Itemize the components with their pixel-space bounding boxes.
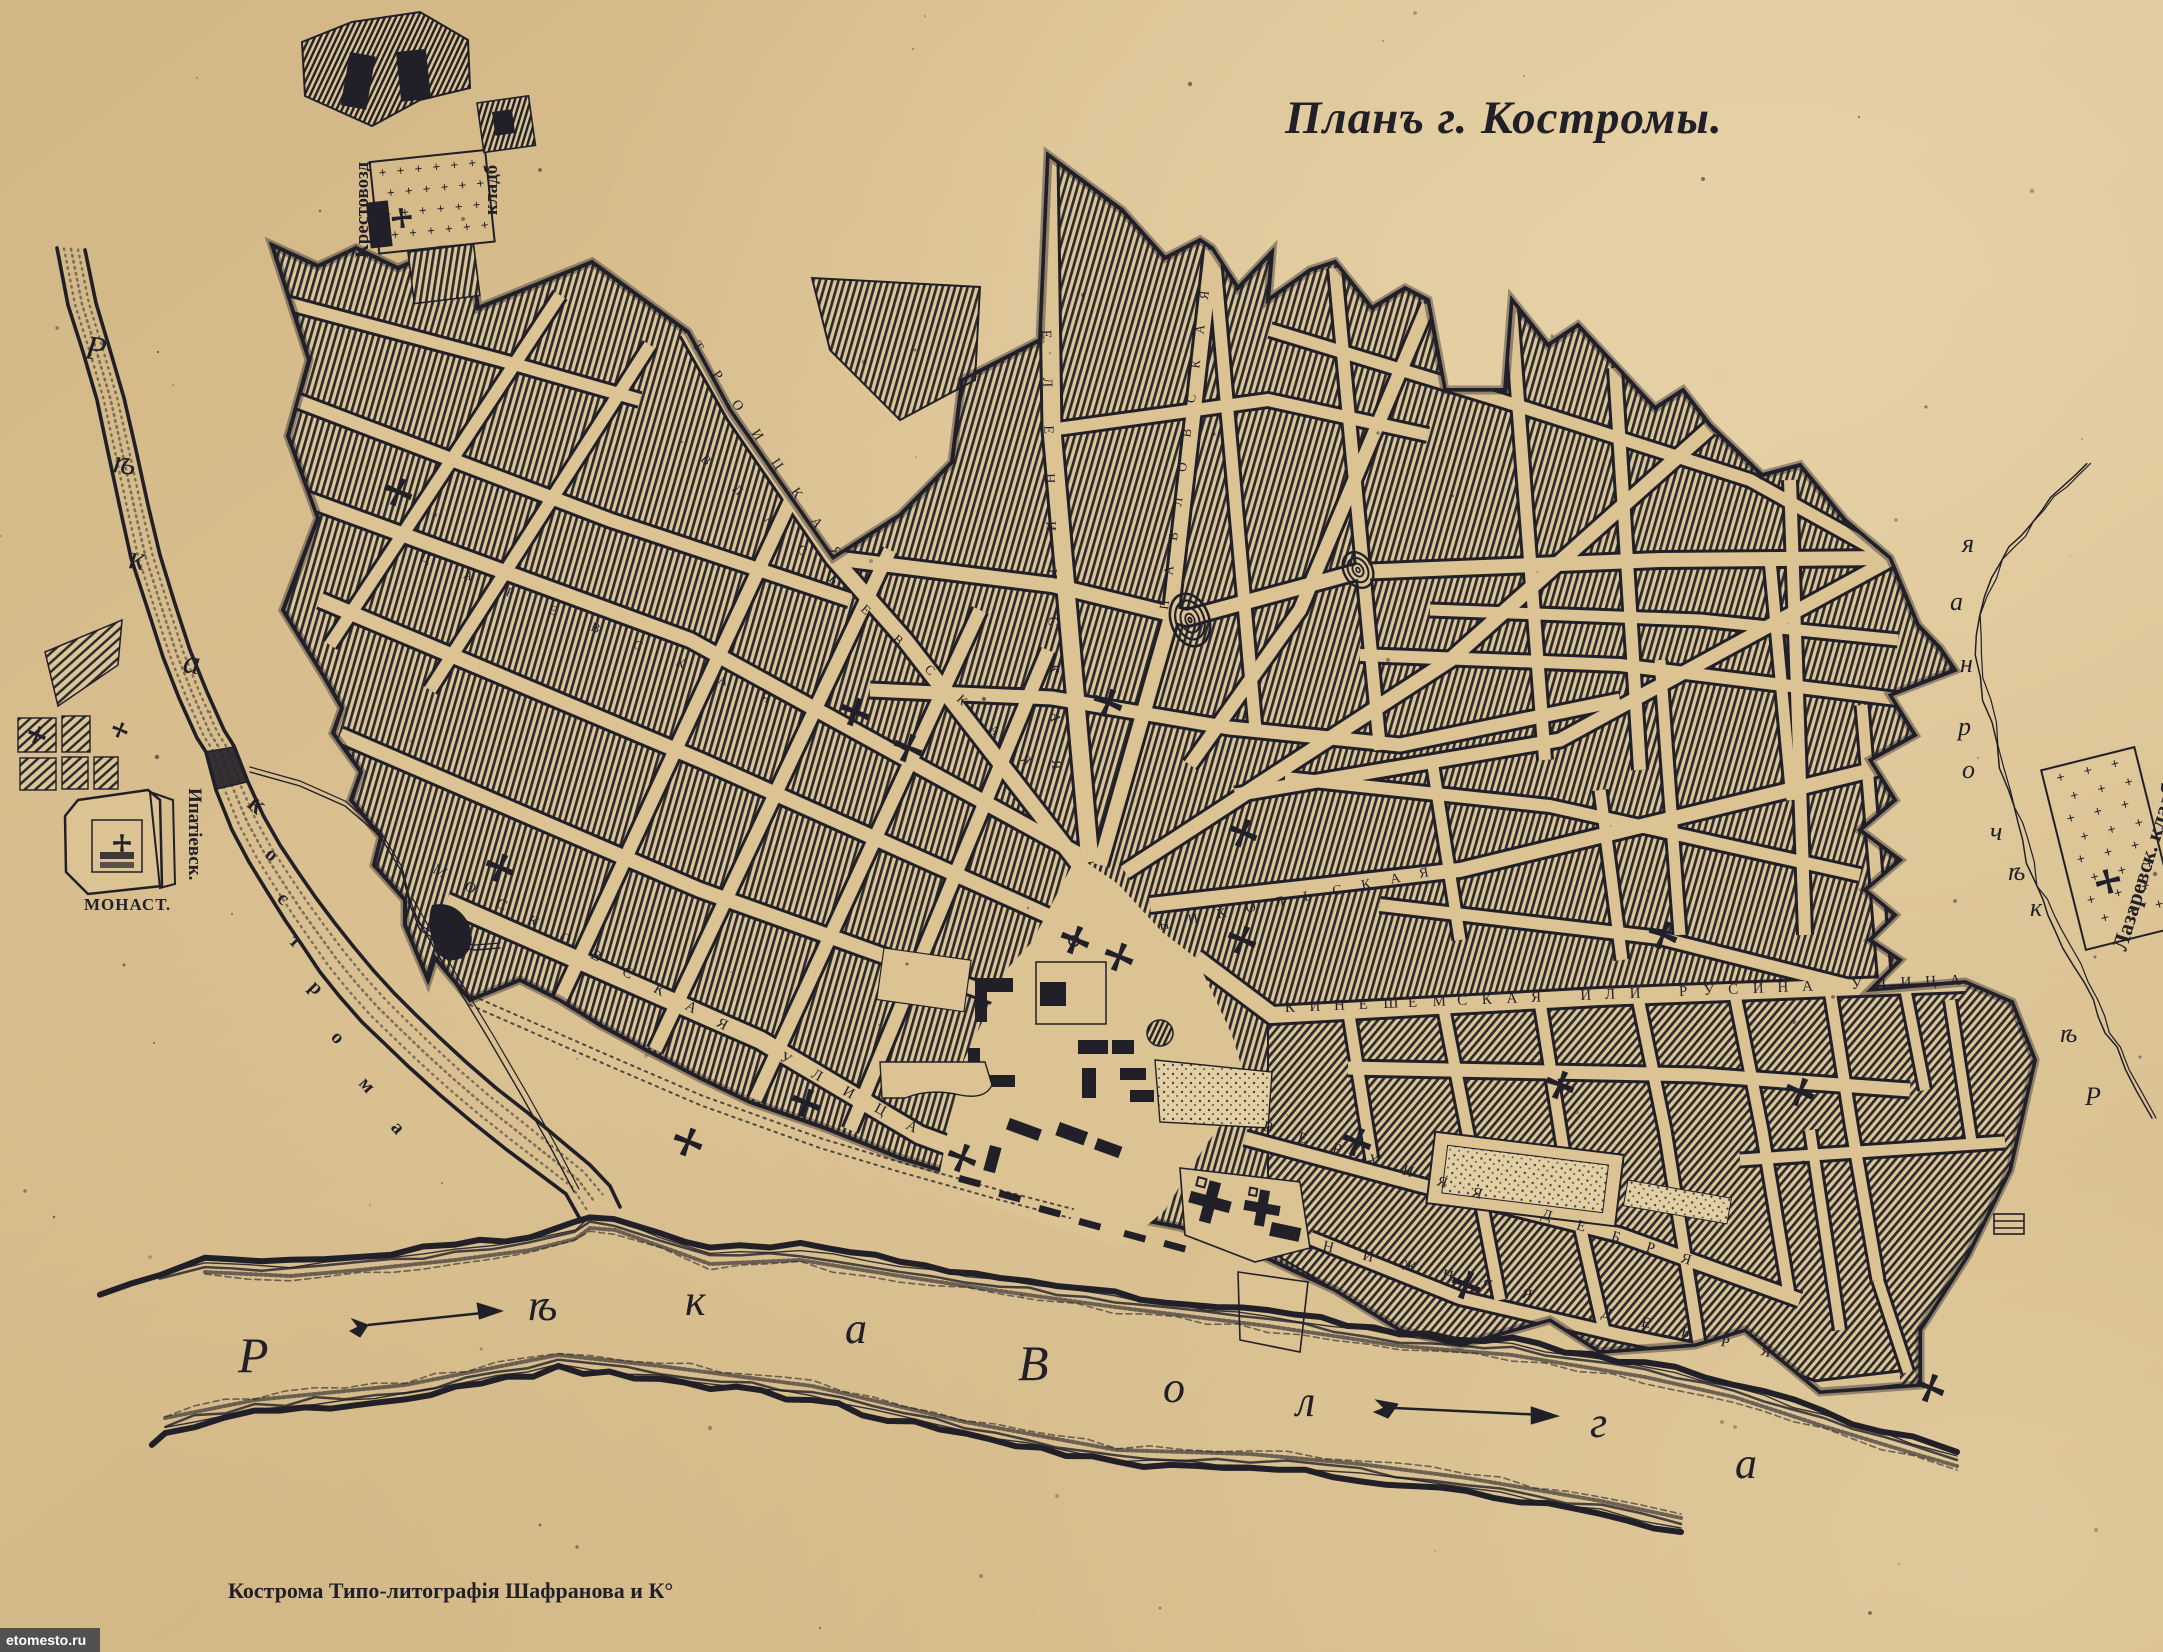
svg-text:Н: Н (1334, 998, 1346, 1014)
svg-text:к: к (685, 1276, 706, 1325)
svg-text:кладб: кладб (481, 165, 502, 215)
svg-text:ѣ: ѣ (528, 1281, 557, 1330)
svg-text:Н: Н (1044, 569, 1059, 579)
svg-text:МОНАСТ.: МОНАСТ. (84, 895, 171, 914)
svg-text:А: А (1047, 712, 1062, 723)
svg-text:Кострома Типо-литографія Ш: Кострома Типо-литографія Шафранова и К° (228, 1578, 673, 1603)
svg-text:Е: Е (1408, 995, 1418, 1011)
svg-text:Крестовозд: Крестовозд (352, 162, 373, 258)
svg-text:+: + (472, 197, 481, 213)
svg-text:Л: Л (1605, 987, 1616, 1003)
svg-text:Л: Л (1876, 976, 1887, 992)
svg-text:+: + (386, 185, 395, 201)
svg-text:О: О (1174, 461, 1190, 472)
svg-text:Е: Е (1040, 425, 1055, 434)
svg-text:а: а (845, 1304, 867, 1353)
svg-text:+: + (409, 225, 418, 241)
svg-text:+: + (426, 223, 435, 239)
svg-text:etomesto.ru: etomesto.ru (6, 1632, 86, 1648)
svg-text:+: + (454, 199, 463, 215)
svg-text:К: К (1285, 1000, 1297, 1016)
svg-text:+: + (458, 177, 467, 193)
svg-text:В: В (1018, 1335, 1049, 1391)
svg-text:К: К (1482, 992, 1494, 1008)
svg-text:о: о (1962, 755, 1975, 784)
svg-text:+: + (422, 181, 431, 197)
svg-text:С: С (1457, 993, 1468, 1009)
svg-text:Е: Е (1358, 997, 1368, 1013)
svg-text:г: г (1590, 1398, 1607, 1447)
svg-text:+: + (462, 219, 471, 235)
svg-text:ѣ: ѣ (2008, 857, 2025, 886)
svg-text:Е: Е (1038, 330, 1053, 339)
svg-text:Ипатіевск.: Ипатіевск. (184, 788, 205, 880)
svg-text:Н: Н (1041, 473, 1056, 483)
svg-text:У: У (1851, 977, 1863, 993)
svg-text:У: У (1703, 983, 1715, 999)
svg-text:+: + (404, 183, 413, 199)
svg-text:Ш: Ш (1383, 995, 1399, 1012)
svg-text:Н: Н (1777, 980, 1789, 996)
svg-text:+: + (450, 157, 459, 173)
svg-text:И: И (1580, 988, 1592, 1004)
svg-text:А: А (1506, 991, 1518, 1007)
svg-text:н: н (1960, 649, 1973, 678)
svg-text:А: А (1802, 979, 1814, 995)
svg-text:А: А (1950, 973, 1962, 989)
svg-text:я: я (1961, 529, 1974, 558)
svg-text:И: И (1309, 999, 1321, 1015)
svg-text:М: М (1432, 993, 1446, 1010)
svg-text:И: И (1900, 975, 1912, 991)
svg-text:ч: ч (1990, 817, 2002, 846)
svg-text:И: И (1629, 986, 1641, 1002)
svg-text:И: И (1752, 981, 1764, 997)
svg-text:+: + (444, 221, 453, 237)
svg-text:+: + (391, 226, 400, 242)
svg-text:С: С (1045, 616, 1060, 626)
svg-text:+: + (378, 164, 387, 180)
svg-text:Ц: Ц (1925, 974, 1937, 990)
svg-text:Л: Л (1039, 378, 1054, 388)
svg-text:л: л (1293, 1377, 1315, 1426)
svg-text:+: + (396, 163, 405, 179)
svg-text:К: К (1046, 664, 1061, 674)
svg-text:р: р (1956, 712, 1971, 741)
svg-text:Планъ г. Костромы.: Планъ г. Костромы. (1284, 92, 1723, 144)
svg-text:+: + (418, 202, 427, 218)
svg-text:а: а (1735, 1439, 1757, 1488)
svg-text:С: С (1728, 982, 1739, 998)
svg-text:к: к (2030, 893, 2043, 922)
svg-text:а: а (1950, 587, 1963, 616)
svg-text:Р: Р (2084, 1082, 2101, 1111)
svg-text:ѣ: ѣ (2060, 1019, 2077, 1048)
svg-text:Р: Р (237, 1327, 269, 1383)
svg-text:И: И (1042, 521, 1057, 531)
svg-text:Я: Я (1531, 990, 1542, 1006)
svg-text:Р: Р (1679, 984, 1688, 1000)
svg-text:+: + (414, 161, 423, 177)
svg-text:+: + (440, 179, 449, 195)
svg-text:Я: Я (1048, 760, 1063, 770)
svg-text:+: + (480, 217, 489, 233)
svg-text:+: + (468, 155, 477, 171)
svg-text:+: + (432, 159, 441, 175)
svg-text:П: П (1156, 599, 1172, 610)
svg-text:+: + (436, 201, 445, 217)
svg-text:о: о (1163, 1363, 1185, 1412)
